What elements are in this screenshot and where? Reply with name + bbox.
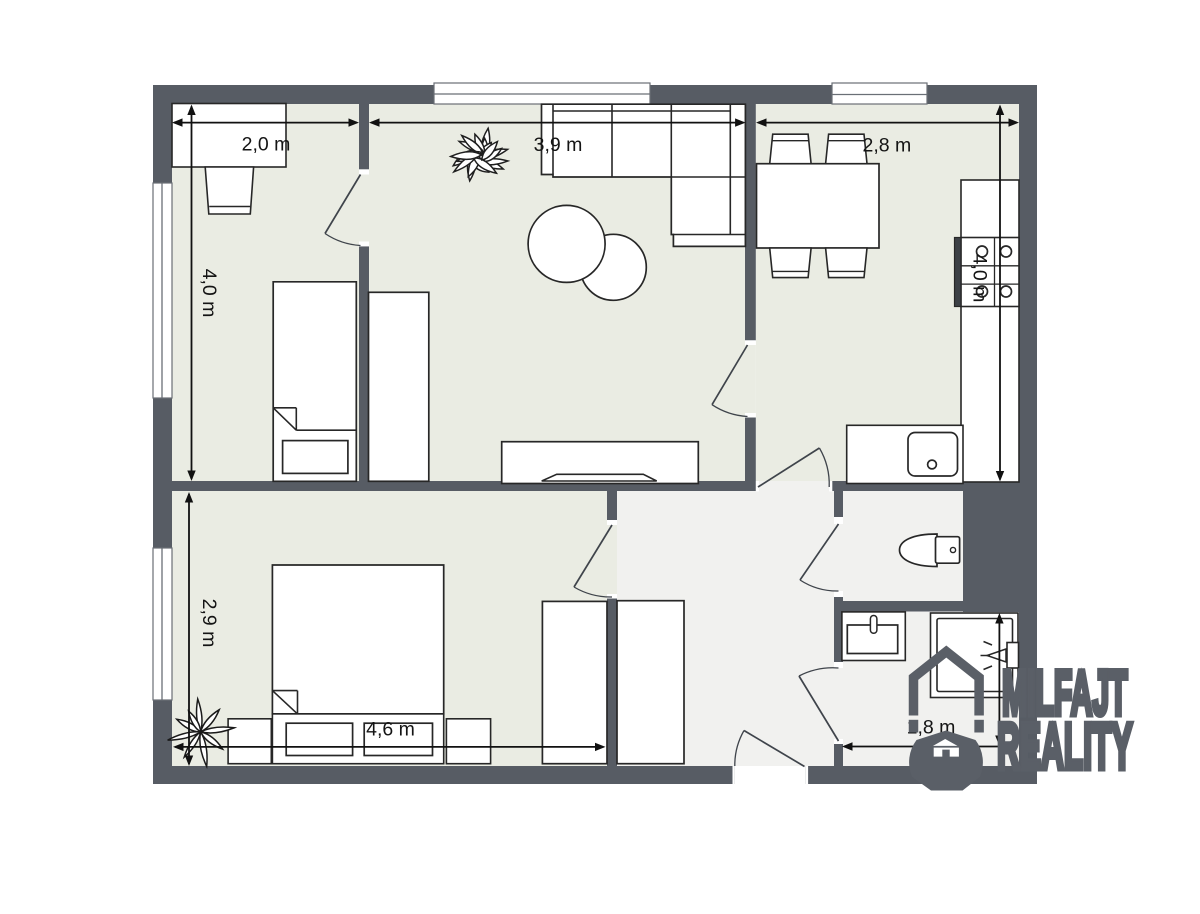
svg-text:2,0 m: 2,0 m [242, 134, 291, 156]
svg-text:4,6 m: 4,6 m [366, 719, 415, 741]
svg-text:3,9 m: 3,9 m [534, 134, 583, 156]
svg-text:REALITY: REALITY [997, 710, 1133, 783]
svg-text:2,9 m: 2,9 m [198, 599, 220, 648]
svg-text:4,0 m: 4,0 m [198, 269, 220, 318]
svg-text:2,8 m: 2,8 m [863, 135, 912, 157]
svg-text:4,0 m: 4,0 m [969, 254, 991, 303]
